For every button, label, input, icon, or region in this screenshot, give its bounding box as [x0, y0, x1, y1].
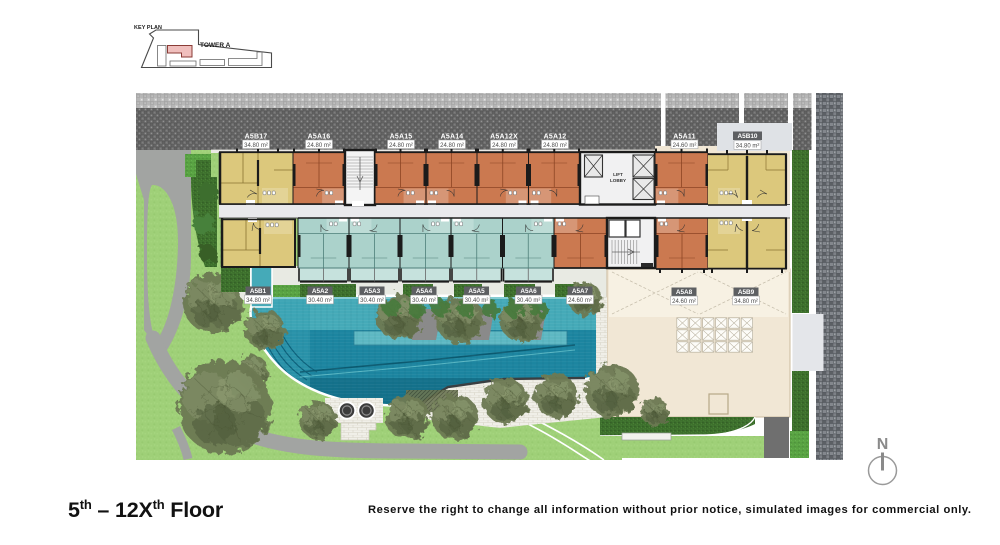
- svg-text:A5A7: A5A7: [572, 288, 589, 295]
- svg-text:A5A14: A5A14: [441, 134, 464, 141]
- svg-text:24.80 m²: 24.80 m²: [543, 143, 567, 149]
- svg-text:34.80 m²: 34.80 m²: [736, 144, 760, 150]
- svg-text:A5B17: A5B17: [245, 134, 268, 141]
- svg-text:A5A4: A5A4: [416, 288, 433, 295]
- svg-text:24.60 m²: 24.60 m²: [568, 298, 592, 304]
- svg-text:34.80 m²: 34.80 m²: [734, 299, 758, 305]
- svg-text:A5B1: A5B1: [250, 288, 267, 295]
- svg-text:LOBBY: LOBBY: [610, 178, 626, 183]
- svg-text:30.40 m²: 30.40 m²: [465, 298, 489, 304]
- svg-text:A5A12X: A5A12X: [490, 134, 518, 141]
- svg-text:24.80 m²: 24.80 m²: [389, 143, 413, 149]
- svg-text:A5A15: A5A15: [390, 134, 413, 141]
- svg-text:A5A6: A5A6: [520, 288, 537, 295]
- svg-text:A5A5: A5A5: [468, 288, 485, 295]
- svg-text:A5A12: A5A12: [544, 134, 567, 141]
- svg-text:LIFT: LIFT: [613, 172, 623, 177]
- svg-text:30.40 m²: 30.40 m²: [360, 298, 384, 304]
- svg-text:30.40 m²: 30.40 m²: [308, 298, 332, 304]
- svg-text:A5A16: A5A16: [308, 134, 331, 141]
- svg-text:24.80 m²: 24.80 m²: [307, 143, 331, 149]
- svg-text:A5B10: A5B10: [738, 133, 758, 140]
- svg-text:34.80 m²: 34.80 m²: [244, 143, 268, 149]
- svg-text:24.80 m²: 24.80 m²: [492, 143, 516, 149]
- svg-text:30.40 m²: 30.40 m²: [517, 298, 541, 304]
- svg-text:24.60 m²: 24.60 m²: [672, 299, 696, 305]
- svg-text:TOWER A: TOWER A: [200, 42, 231, 49]
- svg-text:A5A11: A5A11: [673, 134, 695, 141]
- svg-text:24.60 m²: 24.60 m²: [673, 143, 697, 149]
- svg-text:A5A3: A5A3: [364, 288, 381, 295]
- svg-text:24.80 m²: 24.80 m²: [440, 143, 464, 149]
- svg-text:N: N: [877, 436, 889, 453]
- svg-text:34.80 m²: 34.80 m²: [246, 298, 270, 304]
- svg-text:30.40 m²: 30.40 m²: [412, 298, 436, 304]
- svg-text:A5A2: A5A2: [312, 288, 329, 295]
- svg-text:A5B9: A5B9: [738, 289, 755, 296]
- svg-text:A5A8: A5A8: [676, 289, 693, 296]
